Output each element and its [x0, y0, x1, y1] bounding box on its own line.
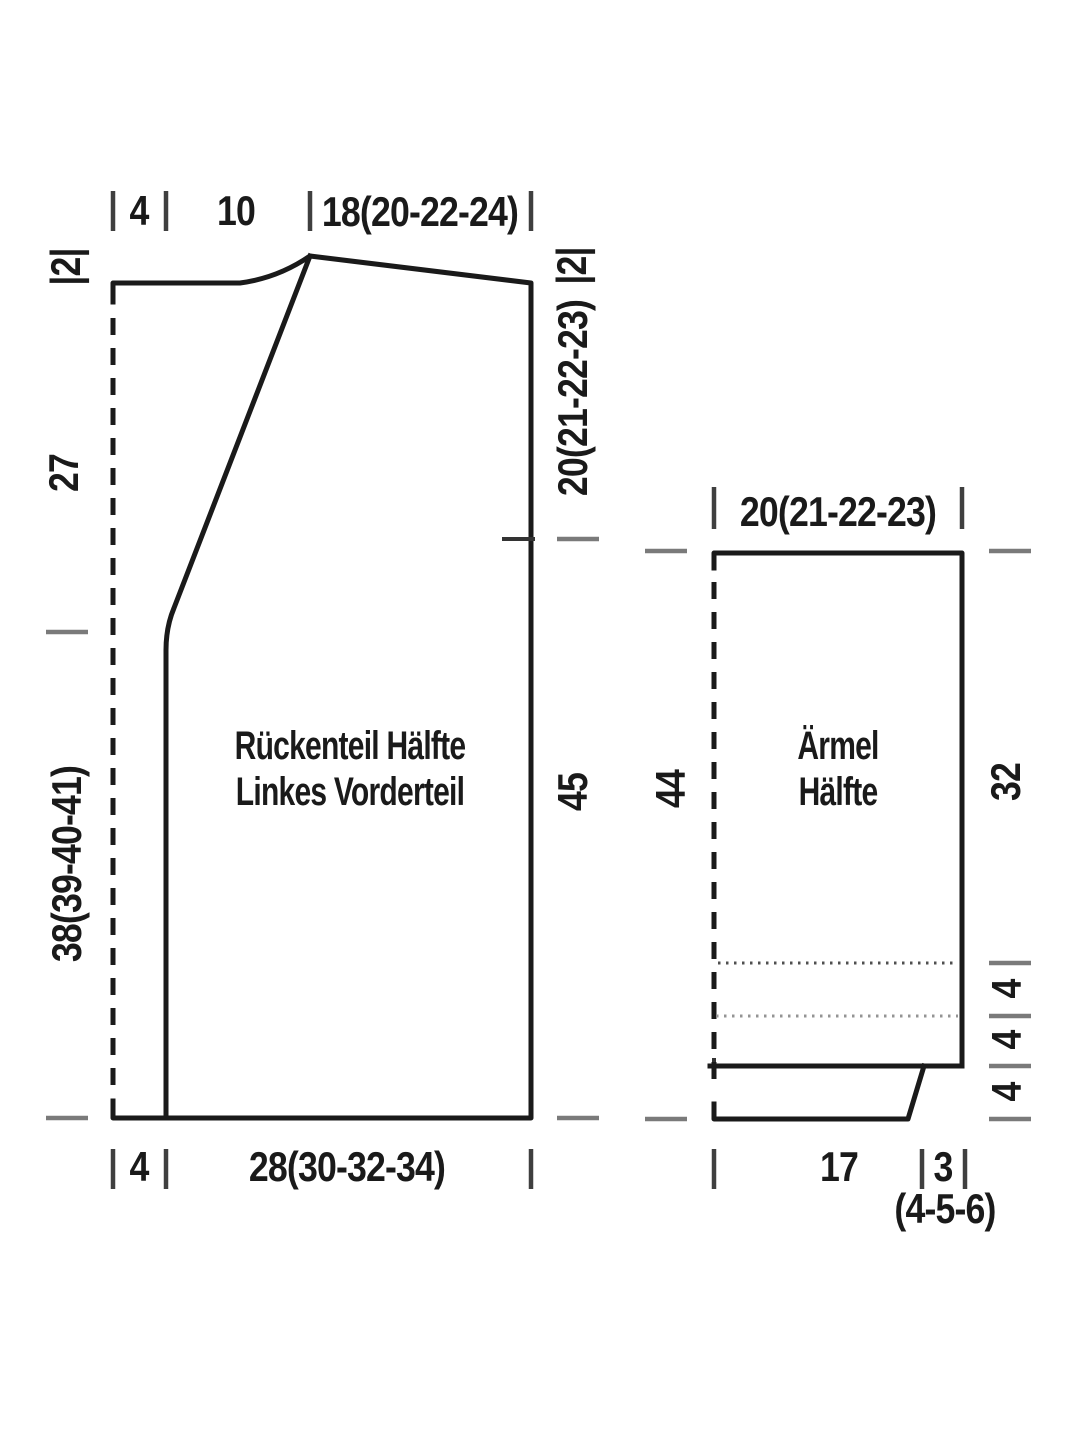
dim-sleeve-right-seg2: 4: [986, 1030, 1028, 1049]
sleeve-piece-title-line2: Hälfte: [799, 769, 878, 815]
dim-body-bottom-width: 28(30-32-34): [249, 1146, 445, 1188]
dim-body-right-collar: |2|: [551, 247, 593, 284]
dim-body-bottom-front-band: 4: [129, 1146, 148, 1188]
dim-sleeve-bottom-slant-sizes: (4-5-6): [894, 1188, 995, 1230]
dim-sleeve-right-seg3: 4: [986, 1082, 1028, 1101]
knitting-schematic: 4 10 18(20-22-24) |2| 27 38(39-40-41) |2…: [0, 0, 1080, 1440]
dim-sleeve-top-width: 20(21-22-23): [740, 491, 936, 533]
dim-sleeve-left-length: 44: [650, 770, 692, 808]
dim-body-right-side: 45: [552, 773, 594, 811]
dim-body-left-upper: 27: [43, 454, 85, 492]
body-piece-title-line1: Rückenteil Hälfte: [235, 723, 466, 769]
dim-body-left-lower: 38(39-40-41): [46, 766, 88, 962]
dim-body-left-collar: |2|: [45, 248, 87, 285]
sleeve-outline: [710, 553, 962, 1119]
dim-sleeve-bottom-cuff: 17: [820, 1146, 858, 1188]
dim-sleeve-bottom-slant: 3: [933, 1146, 952, 1188]
dim-sleeve-right-upper: 32: [985, 763, 1027, 801]
dim-body-top-shoulder: 18(20-22-24): [322, 191, 518, 233]
dim-body-top-front-band: 4: [129, 190, 148, 232]
body-outline: [113, 256, 535, 1118]
sleeve-piece-title-line1: Ärmel: [797, 723, 878, 769]
dim-sleeve-right-seg1: 4: [986, 979, 1028, 998]
dim-body-top-neck: 10: [217, 190, 255, 232]
dim-body-right-armhole: 20(21-22-23): [552, 300, 594, 496]
sleeve-dimension-ticks: [645, 487, 1031, 1189]
body-piece-title-line2: Linkes Vorderteil: [236, 769, 464, 815]
body-dimension-ticks: [46, 191, 599, 1189]
